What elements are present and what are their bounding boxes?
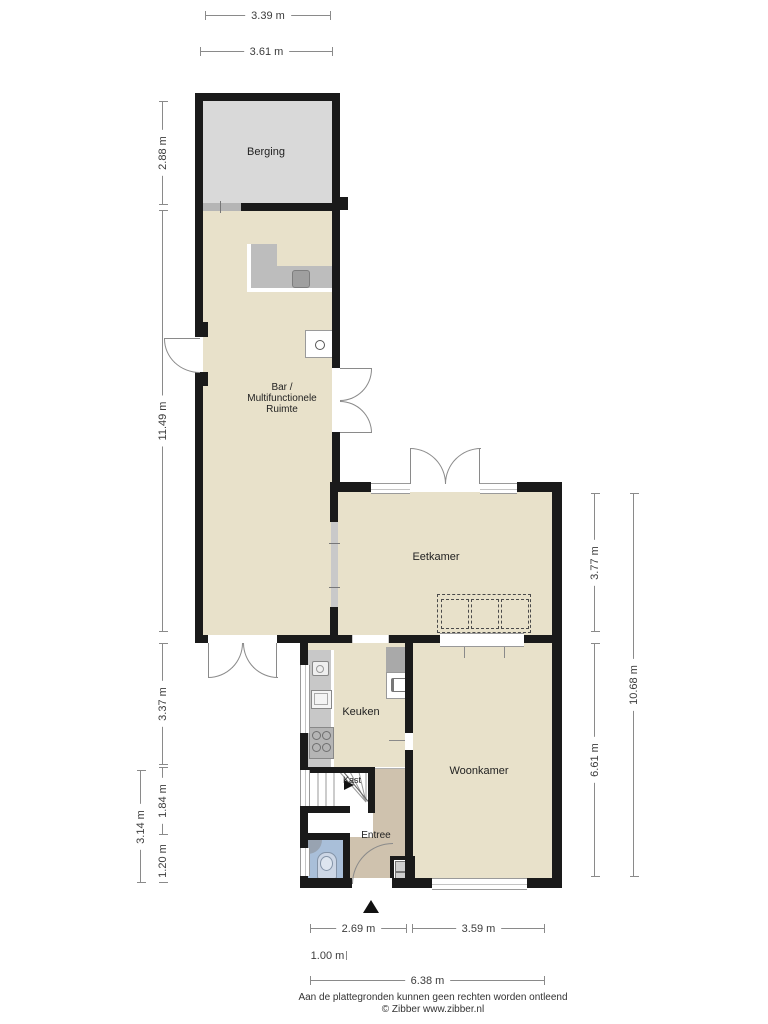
- door-arc: [340, 401, 372, 433]
- wall-segment: [343, 840, 350, 878]
- stove-icon: [309, 727, 334, 759]
- dim-lower-left-total: 3.14 m: [140, 770, 141, 883]
- berging-door-tick: [220, 201, 221, 213]
- room-label-entree: Entree: [336, 830, 416, 841]
- bar-sink-icon: [292, 270, 310, 288]
- wall-segment: [307, 806, 350, 813]
- window: [300, 848, 310, 876]
- room-label-bar: Bar / Multifunctionele Ruimte: [232, 382, 332, 415]
- wall-segment: [300, 878, 352, 888]
- door-opening: [410, 483, 480, 492]
- open-boundary-line: [375, 768, 405, 769]
- footer-disclaimer: Aan de plattegronden kunnen geen rechten…: [283, 992, 583, 1003]
- door-arc: [340, 369, 372, 401]
- berging-door: [203, 203, 241, 211]
- toilet-icon: [317, 852, 337, 879]
- wall-segment: [300, 767, 375, 773]
- window: [480, 483, 517, 494]
- cabinet-box: [471, 599, 499, 629]
- dim-top-outer: 3.61 m: [200, 51, 333, 52]
- wall-segment: [330, 482, 371, 492]
- dim-top-inner: 3.39 m: [205, 15, 331, 16]
- window: [432, 878, 527, 890]
- wall-segment: [405, 750, 413, 878]
- room-label-eetkamer: Eetkamer: [386, 551, 486, 563]
- dim-small-width: 1.00 m: [308, 955, 347, 956]
- wall-segment: [195, 93, 340, 101]
- door-opening: [332, 368, 340, 432]
- cabinet-box: [501, 599, 529, 629]
- wall-segment: [300, 733, 308, 770]
- wall-segment: [195, 322, 208, 337]
- wall-segment: [523, 635, 552, 643]
- door-leaf: [340, 432, 372, 433]
- wall-segment: [340, 197, 348, 210]
- interior-window-tick: [329, 543, 340, 544]
- dim-entree-width: 2.69 m: [310, 928, 407, 929]
- window: [300, 770, 310, 806]
- dim-toilet-height: 1.20 m: [162, 838, 163, 883]
- dim-berging-height: 2.88 m: [162, 101, 163, 205]
- window: [371, 483, 410, 494]
- wall-segment: [195, 101, 203, 337]
- window: [300, 665, 310, 733]
- room-label-kast: Kast: [322, 775, 382, 785]
- room-label-berging: Berging: [216, 146, 316, 158]
- kitchen-faucet-icon: [312, 661, 329, 676]
- stairs-icon: [308, 768, 372, 806]
- footer-copyright: © Zibber www.zibber.nl: [283, 1004, 583, 1015]
- room-label-keuken: Keuken: [311, 706, 411, 718]
- dim-right-total: 10.68 m: [633, 493, 634, 877]
- door-leaf: [276, 643, 277, 677]
- door-opening: [208, 635, 277, 643]
- wall-segment: [330, 607, 338, 635]
- door-leaf: [389, 740, 405, 741]
- room-fill-woonkamer: [413, 643, 552, 878]
- door-arc: [445, 448, 481, 484]
- wall-segment: [332, 432, 340, 482]
- wall-segment: [405, 643, 413, 733]
- dim-bar-height: 11.49 m: [162, 210, 163, 632]
- dim-woonkamer-width: 3.59 m: [412, 928, 545, 929]
- room-label-woonkamer: Woonkamer: [429, 765, 529, 777]
- wall-segment: [552, 482, 562, 888]
- wall-segment: [195, 635, 208, 643]
- dim-keuken-height: 3.37 m: [162, 643, 163, 765]
- door-arc: [208, 643, 243, 678]
- interior-window-tick: [329, 587, 340, 588]
- dim-eetkamer-height: 3.77 m: [594, 493, 595, 632]
- interior-window: [331, 522, 338, 607]
- dim-woonkamer-height: 6.61 m: [594, 643, 595, 877]
- north-arrow-icon: [363, 900, 379, 913]
- bar-counter-edge: [247, 288, 333, 292]
- wall-segment: [387, 635, 440, 643]
- boiler-dial-icon: [315, 340, 325, 350]
- door-arc: [243, 643, 278, 678]
- wall-segment: [195, 372, 203, 643]
- door-arc: [164, 339, 200, 373]
- cabinet-box: [441, 599, 469, 629]
- wall-segment: [392, 878, 432, 888]
- boiler-icon: [305, 330, 334, 358]
- door-opening: [405, 733, 413, 750]
- floor-plan: Berging Bar / Multifunctionele Ruimte Ee…: [0, 0, 768, 1024]
- wall-segment: [300, 635, 308, 665]
- passage-opening: [352, 635, 389, 643]
- door-leaf: [479, 448, 480, 484]
- wall-segment: [332, 101, 340, 368]
- ensuite-opening: [440, 633, 524, 647]
- dim-bottom-total: 6.38 m: [310, 980, 545, 981]
- wall-segment: [527, 878, 562, 888]
- wall-segment: [277, 635, 352, 643]
- door-arc: [410, 448, 446, 484]
- dim-hal-height: 1.84 m: [162, 767, 163, 835]
